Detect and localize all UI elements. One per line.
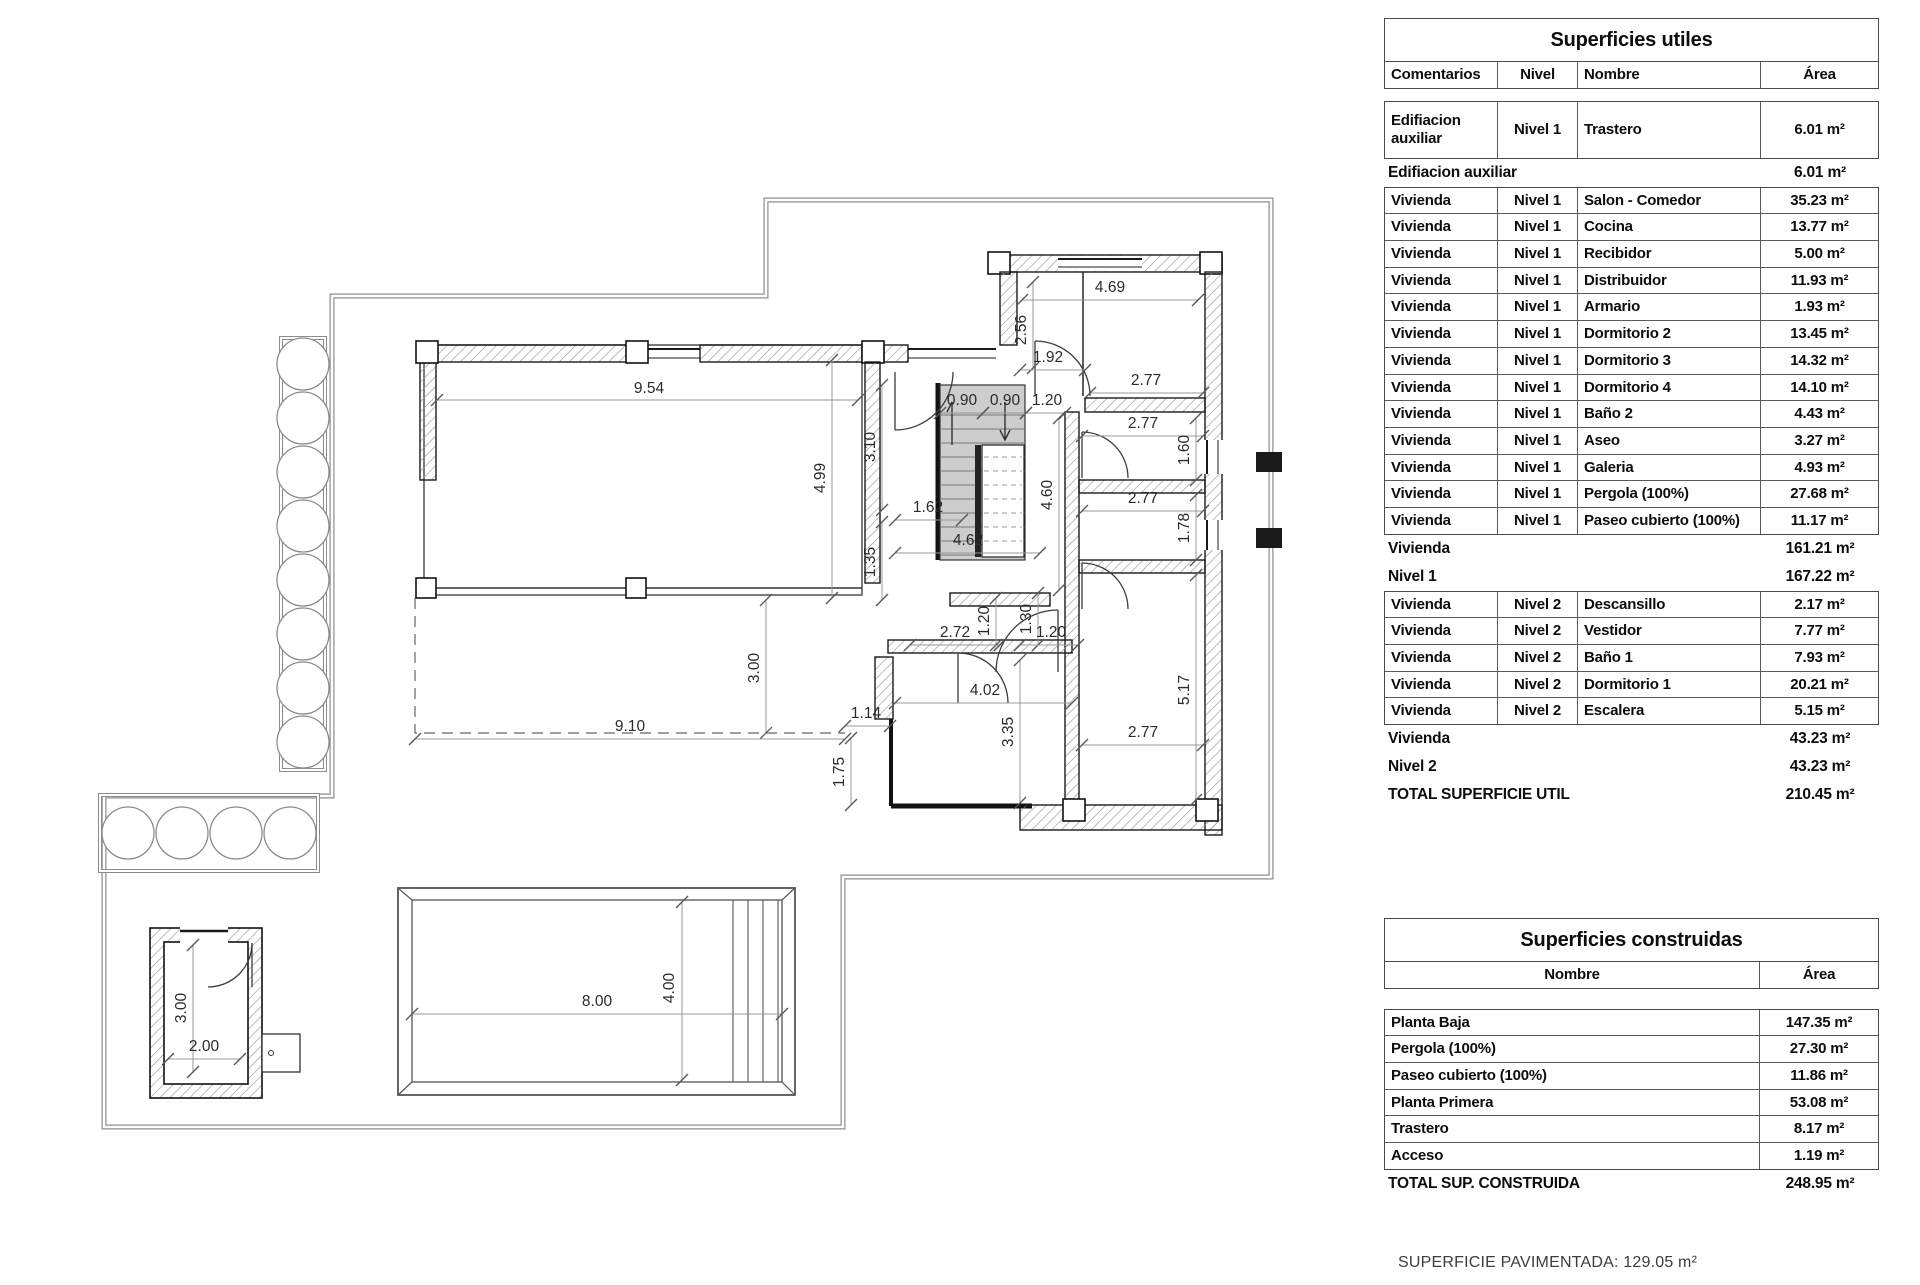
- pergola-post: [626, 578, 646, 598]
- table-cell: 20.21 m²: [1760, 672, 1878, 698]
- table-cell: Nivel 2: [1497, 645, 1577, 671]
- wall-post: [1063, 799, 1085, 821]
- table-cell: 3.27 m²: [1760, 428, 1878, 454]
- table-row: Pergola (100%)27.30 m²: [1385, 1035, 1878, 1062]
- dimension-label: 1.78: [1176, 513, 1193, 543]
- wall-post: [1200, 252, 1222, 274]
- dimension-label: 1.20: [976, 606, 993, 637]
- table-cell: Nivel 1: [1497, 214, 1577, 240]
- table-header-row: ComentariosNivelNombreÁrea: [1385, 61, 1878, 88]
- summary-value: 43.23 m²: [1761, 728, 1879, 750]
- summary-value: 161.21 m²: [1761, 538, 1879, 560]
- dimension-label: 1.20: [1036, 624, 1067, 641]
- dimension-label: 1.62: [913, 499, 943, 516]
- table-row: Trastero8.17 m²: [1385, 1115, 1878, 1142]
- table-cell: Vivienda: [1385, 672, 1497, 698]
- table-cell: 1.19 m²: [1759, 1143, 1878, 1169]
- dimension-label: 0.90: [990, 392, 1021, 409]
- table-total-row: TOTAL SUP. CONSTRUIDA248.95 m²: [1384, 1170, 1879, 1198]
- table-cell: Vivienda: [1385, 375, 1497, 401]
- pool-steps: [733, 900, 778, 1082]
- table-cell: 35.23 m²: [1760, 188, 1878, 214]
- table-cell: Vivienda: [1385, 348, 1497, 374]
- table-cell: 11.17 m²: [1760, 508, 1878, 534]
- table-cell: 27.30 m²: [1759, 1036, 1878, 1062]
- table-row: ViviendaNivel 1Armario1.93 m²: [1385, 293, 1878, 320]
- summary-label: TOTAL SUPERFICIE UTIL: [1384, 784, 1761, 806]
- column-header: Área: [1759, 962, 1878, 988]
- tree: [102, 807, 154, 859]
- table-cell: Vivienda: [1385, 214, 1497, 240]
- tree: [277, 554, 329, 606]
- table-group-nivel2: ViviendaNivel 2Descansillo2.17 m²Viviend…: [1384, 591, 1879, 725]
- dimension-label: 4.99: [812, 463, 829, 493]
- table-header-row: NombreÁrea: [1385, 961, 1878, 988]
- table-row: ViviendaNivel 1Dormitorio 314.32 m²: [1385, 347, 1878, 374]
- table-cell: 8.17 m²: [1759, 1116, 1878, 1142]
- table-cell: Nivel 2: [1497, 672, 1577, 698]
- table-cell: Nivel 1: [1497, 481, 1577, 507]
- table-cell: 1.93 m²: [1760, 294, 1878, 320]
- table-row: ViviendaNivel 2Descansillo2.17 m²: [1385, 592, 1878, 618]
- access-gate-pillar: [1256, 528, 1282, 548]
- pergola-post: [862, 341, 884, 363]
- table-cell: 14.32 m²: [1760, 348, 1878, 374]
- paved-surface-note: SUPERFICIE PAVIMENTADA: 129.05 m²: [1398, 1254, 1697, 1272]
- dimension-label: 1.30: [1018, 604, 1035, 635]
- table-cell: Vivienda: [1385, 645, 1497, 671]
- dimension-label: 2.77: [1128, 415, 1158, 432]
- table-cell: Nivel 1: [1497, 428, 1577, 454]
- summary-row: TOTAL SUP. CONSTRUIDA248.95 m²: [1384, 1170, 1879, 1198]
- column-header: Nivel: [1497, 62, 1577, 88]
- dimension-label: 4.02: [970, 682, 1000, 699]
- tree: [277, 392, 329, 444]
- table-cell: Trastero: [1385, 1116, 1759, 1142]
- wall-post: [988, 252, 1010, 274]
- dimension-label: 4.00: [661, 973, 678, 1004]
- pergola-post: [626, 341, 648, 363]
- table-row: ViviendaNivel 1Dormitorio 414.10 m²: [1385, 374, 1878, 401]
- table-cell: 27.68 m²: [1760, 481, 1878, 507]
- table-cell: Nivel 1: [1497, 321, 1577, 347]
- table-cell: Nivel 1: [1497, 268, 1577, 294]
- table-cell: 11.93 m²: [1760, 268, 1878, 294]
- table-cell: Vestidor: [1577, 618, 1760, 644]
- table-cell: Edifiacion auxiliar: [1385, 102, 1497, 158]
- table-cell: Pergola (100%): [1577, 481, 1760, 507]
- table-cell: Dormitorio 4: [1577, 375, 1760, 401]
- dimension-label: 1.14: [851, 705, 882, 722]
- table-cell: Vivienda: [1385, 268, 1497, 294]
- table-cell: 13.45 m²: [1760, 321, 1878, 347]
- table-cell: Salon - Comedor: [1577, 188, 1760, 214]
- table-row: ViviendaNivel 1Recibidor5.00 m²: [1385, 240, 1878, 267]
- table-cell: Nivel 1: [1497, 508, 1577, 534]
- tree-planter-vertical: [277, 338, 329, 770]
- table-row: ViviendaNivel 1Galeria4.93 m²: [1385, 454, 1878, 481]
- dimension-label: 3.35: [1000, 717, 1017, 747]
- table-row: ViviendaNivel 1Paseo cubierto (100%)11.1…: [1385, 507, 1878, 534]
- table-cell: Nivel 1: [1497, 348, 1577, 374]
- table-cell: Descansillo: [1577, 592, 1760, 618]
- dimension-label: 1.20: [1032, 392, 1063, 409]
- subtotal-nivel1: Vivienda161.21 m²Nivel 1167.22 m²: [1384, 535, 1879, 591]
- table-cell: Vivienda: [1385, 481, 1497, 507]
- table-cell: 4.93 m²: [1760, 455, 1878, 481]
- table-rows: Planta Baja147.35 m²Pergola (100%)27.30 …: [1384, 1009, 1879, 1170]
- table-row: ViviendaNivel 1Pergola (100%)27.68 m²: [1385, 480, 1878, 507]
- dimension-label: 3.00: [746, 653, 763, 684]
- table-cell: Nivel 1: [1497, 188, 1577, 214]
- dimension-label: 2.77: [1131, 372, 1161, 389]
- table-cell: Distribuidor: [1577, 268, 1760, 294]
- subtotal-nivel2-total: Vivienda43.23 m²Nivel 243.23 m²TOTAL SUP…: [1384, 725, 1879, 809]
- table-cell: Vivienda: [1385, 508, 1497, 534]
- table-cell: 5.00 m²: [1760, 241, 1878, 267]
- summary-row: Nivel 243.23 m²: [1384, 753, 1879, 781]
- table-cell: Vivienda: [1385, 698, 1497, 724]
- tree: [264, 807, 316, 859]
- table-cell: 13.77 m²: [1760, 214, 1878, 240]
- dimension-label: 3.00: [173, 993, 190, 1024]
- table-row: ViviendaNivel 2Dormitorio 120.21 m²: [1385, 671, 1878, 698]
- door-room-1: [1082, 432, 1128, 478]
- table-cell: Planta Baja: [1385, 1010, 1759, 1036]
- table-cell: 11.86 m²: [1759, 1063, 1878, 1089]
- pergola-post: [416, 578, 436, 598]
- table-cell: Vivienda: [1385, 618, 1497, 644]
- table-cell: Paseo cubierto (100%): [1385, 1063, 1759, 1089]
- table-cell: Nivel 1: [1497, 294, 1577, 320]
- house-walls: [865, 252, 1223, 835]
- dimension-label: 3.10: [862, 432, 879, 463]
- dimension-label: 8.00: [582, 993, 613, 1010]
- table-cell: Dormitorio 2: [1577, 321, 1760, 347]
- tree: [277, 338, 329, 390]
- table-cell: Trastero: [1577, 102, 1760, 158]
- table-cell: Paseo cubierto (100%): [1577, 508, 1760, 534]
- table-cell: Galeria: [1577, 455, 1760, 481]
- dimension-label: 4.62: [953, 532, 983, 549]
- table-cell: Vivienda: [1385, 401, 1497, 427]
- subtotal-aux: Edifiacion auxiliar6.01 m²: [1384, 159, 1879, 187]
- tree: [277, 716, 329, 768]
- table-row: ViviendaNivel 1Aseo3.27 m²: [1385, 427, 1878, 454]
- column-header: Área: [1760, 62, 1878, 88]
- swimming-pool: [398, 888, 795, 1095]
- summary-value: 210.45 m²: [1761, 784, 1879, 806]
- floor-plan: 9.544.692.561.922.770.900.901.202.771.60…: [0, 0, 1380, 1280]
- table-cell: Vivienda: [1385, 455, 1497, 481]
- table-row: Paseo cubierto (100%)11.86 m²: [1385, 1062, 1878, 1089]
- tree-planter-horizontal: [100, 795, 318, 871]
- summary-value: 6.01 m²: [1761, 162, 1879, 184]
- table-cell: 5.15 m²: [1760, 698, 1878, 724]
- dimension-label: 5.17: [1176, 675, 1193, 705]
- tree: [277, 446, 329, 498]
- table-row: ViviendaNivel 1Dormitorio 213.45 m²: [1385, 320, 1878, 347]
- table-superficies-construidas: Superficies construidas NombreÁrea Plant…: [1384, 918, 1879, 1198]
- summary-row: Edifiacion auxiliar6.01 m²: [1384, 159, 1879, 187]
- tree: [277, 662, 329, 714]
- dimension-label: 2.56: [1013, 315, 1030, 345]
- column-header: Comentarios: [1385, 62, 1497, 88]
- table-cell: Baño 2: [1577, 401, 1760, 427]
- dimension-label: 1.60: [1176, 435, 1193, 466]
- table-group-aux: Edifiacion auxiliarNivel 1Trastero6.01 m…: [1384, 101, 1879, 159]
- summary-row: Vivienda161.21 m²: [1384, 535, 1879, 563]
- dimension-label: 9.54: [634, 380, 665, 397]
- table-cell: Aseo: [1577, 428, 1760, 454]
- dimension-label: 1.92: [1033, 349, 1063, 366]
- summary-value: 167.22 m²: [1761, 566, 1879, 588]
- dimension-label: 1.75: [831, 757, 848, 787]
- table-row: ViviendaNivel 1Distribuidor11.93 m²: [1385, 267, 1878, 294]
- summary-label: Vivienda: [1384, 538, 1761, 560]
- wall-post: [1196, 799, 1218, 821]
- summary-value: 43.23 m²: [1761, 756, 1879, 778]
- table-row: Acceso1.19 m²: [1385, 1142, 1878, 1169]
- table-title: Superficies construidas: [1385, 919, 1878, 961]
- table-row: Planta Primera53.08 m²: [1385, 1089, 1878, 1116]
- dimension-label: 2.77: [1128, 490, 1158, 507]
- table-row: ViviendaNivel 1Baño 24.43 m²: [1385, 400, 1878, 427]
- table-cell: Dormitorio 1: [1577, 672, 1760, 698]
- summary-row: Vivienda43.23 m²: [1384, 725, 1879, 753]
- dimension-label: 1.35: [862, 547, 879, 577]
- table-cell: Nivel 2: [1497, 618, 1577, 644]
- table-row: ViviendaNivel 1Salon - Comedor35.23 m²: [1385, 188, 1878, 214]
- table-cell: Vivienda: [1385, 188, 1497, 214]
- table-row: Edifiacion auxiliarNivel 1Trastero6.01 m…: [1385, 102, 1878, 158]
- table-row: Planta Baja147.35 m²: [1385, 1010, 1878, 1036]
- table-row: ViviendaNivel 2Escalera5.15 m²: [1385, 697, 1878, 724]
- table-group-nivel1: ViviendaNivel 1Salon - Comedor35.23 m²Vi…: [1384, 187, 1879, 535]
- dimension-label: 0.90: [947, 392, 978, 409]
- table-cell: 147.35 m²: [1759, 1010, 1878, 1036]
- table-row: ViviendaNivel 2Baño 17.93 m²: [1385, 644, 1878, 671]
- table-cell: Vivienda: [1385, 294, 1497, 320]
- dimension-label: 2.77: [1128, 724, 1158, 741]
- table-cell: Acceso: [1385, 1143, 1759, 1169]
- table-cell: 2.17 m²: [1760, 592, 1878, 618]
- table-cell: Nivel 1: [1497, 375, 1577, 401]
- table-cell: Cocina: [1577, 214, 1760, 240]
- summary-label: TOTAL SUP. CONSTRUIDA: [1384, 1173, 1761, 1195]
- table-title: Superficies utiles: [1385, 19, 1878, 61]
- table-cell: Nivel 1: [1497, 455, 1577, 481]
- table-cell: Nivel 1: [1497, 241, 1577, 267]
- table-cell: Vivienda: [1385, 592, 1497, 618]
- summary-row: TOTAL SUPERFICIE UTIL210.45 m²: [1384, 781, 1879, 809]
- summary-label: Nivel 1: [1384, 566, 1761, 588]
- pergola-post: [416, 341, 438, 363]
- dimension-label: 2.72: [940, 624, 970, 641]
- dimension-label: 4.69: [1095, 279, 1125, 296]
- table-superficies-utiles: Superficies utiles ComentariosNivelNombr…: [1384, 18, 1879, 809]
- table-cell: Nivel 1: [1497, 102, 1577, 158]
- paving-dashed-line: [415, 598, 845, 733]
- table-cell: Escalera: [1577, 698, 1760, 724]
- dimension-label: 2.00: [189, 1038, 220, 1055]
- access-gate-pillar: [1256, 452, 1282, 472]
- table-cell: 53.08 m²: [1759, 1090, 1878, 1116]
- table-cell: Armario: [1577, 294, 1760, 320]
- table-row: ViviendaNivel 1Cocina13.77 m²: [1385, 213, 1878, 240]
- table-cell: Vivienda: [1385, 321, 1497, 347]
- table-cell: Planta Primera: [1385, 1090, 1759, 1116]
- table-cell: Recibidor: [1577, 241, 1760, 267]
- dimension-label: 4.60: [1039, 480, 1056, 511]
- summary-label: Nivel 2: [1384, 756, 1761, 778]
- tree: [277, 500, 329, 552]
- table-cell: Vivienda: [1385, 428, 1497, 454]
- table-cell: 6.01 m²: [1760, 102, 1878, 158]
- column-header: Nombre: [1577, 62, 1760, 88]
- table-cell: Nivel 1: [1497, 401, 1577, 427]
- summary-value: 248.95 m²: [1761, 1173, 1879, 1195]
- table-cell: 4.43 m²: [1760, 401, 1878, 427]
- dimension-label: 9.10: [615, 718, 646, 735]
- tree: [156, 807, 208, 859]
- table-cell: Nivel 2: [1497, 698, 1577, 724]
- table-cell: Baño 1: [1577, 645, 1760, 671]
- table-cell: Dormitorio 3: [1577, 348, 1760, 374]
- table-cell: 7.77 m²: [1760, 618, 1878, 644]
- equipment-box: [262, 1034, 300, 1072]
- tree: [210, 807, 262, 859]
- table-row: ViviendaNivel 2Vestidor7.77 m²: [1385, 617, 1878, 644]
- summary-row: Nivel 1167.22 m²: [1384, 563, 1879, 591]
- column-header: Nombre: [1385, 962, 1759, 988]
- table-cell: Pergola (100%): [1385, 1036, 1759, 1062]
- table-cell: Nivel 2: [1497, 592, 1577, 618]
- table-cell: 14.10 m²: [1760, 375, 1878, 401]
- summary-label: Vivienda: [1384, 728, 1761, 750]
- table-cell: 7.93 m²: [1760, 645, 1878, 671]
- table-cell: Vivienda: [1385, 241, 1497, 267]
- summary-label: Edifiacion auxiliar: [1384, 162, 1761, 184]
- tree: [277, 608, 329, 660]
